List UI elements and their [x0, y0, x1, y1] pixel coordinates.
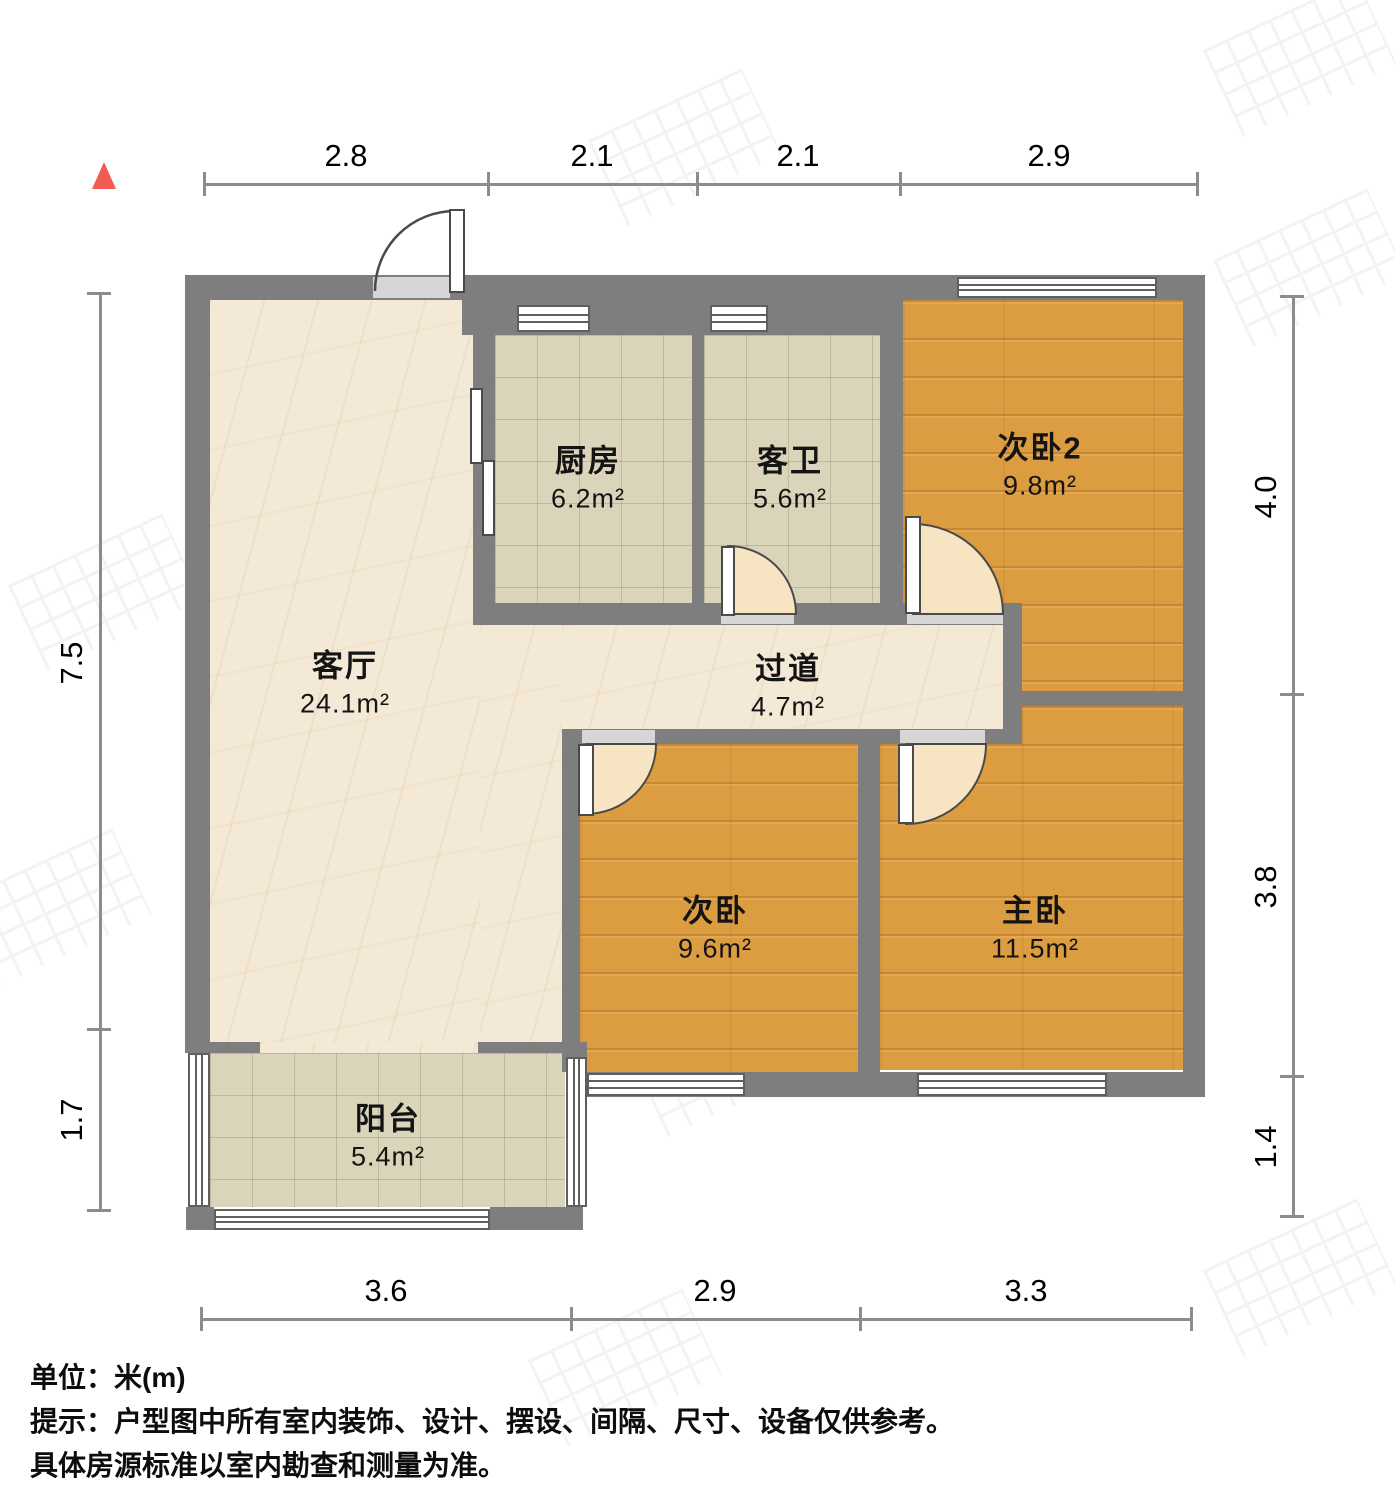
north-marker-icon — [92, 162, 116, 189]
room-name: 主卧 — [991, 886, 1079, 931]
watermark — [8, 514, 202, 672]
bedroom2-label: 次卧2 9.8m² — [997, 423, 1082, 502]
entrance-door-leaf-icon — [449, 209, 465, 293]
dim-tick — [899, 172, 902, 196]
watermark — [0, 829, 152, 987]
wall-bathroom-east — [880, 300, 903, 625]
master-door-leaf-icon — [898, 744, 914, 824]
living-room-label: 客厅 24.1m² — [300, 641, 390, 720]
dim-tick — [1280, 1075, 1304, 1078]
unit-note: 单位：米(m) — [30, 1356, 954, 1400]
dim-tick — [570, 1307, 573, 1331]
room-name: 厨房 — [551, 436, 625, 481]
wall-right — [1183, 275, 1205, 1097]
tip-note-line2: 具体房源标准以室内勘查和测量为准。 — [30, 1444, 954, 1488]
kitchen-sliding-door-icon — [482, 460, 495, 536]
balcony-label: 阳台 5.4m² — [351, 1094, 425, 1173]
dim-tick — [1190, 1307, 1193, 1331]
bedroom-label: 次卧 9.6m² — [678, 886, 752, 965]
bedroom-door-arc-icon — [584, 742, 658, 816]
footnotes: 单位：米(m) 提示：户型图中所有室内装饰、设计、摆设、间隔、尺寸、设备仅供参考… — [30, 1356, 954, 1488]
entrance-door-arc-icon — [373, 209, 457, 293]
dim-line-right — [1292, 296, 1295, 1218]
wall-kitchen-bath-divider — [692, 335, 704, 603]
kitchen-sliding-door-icon — [470, 388, 483, 464]
dim-tick — [1196, 172, 1199, 196]
room-area: 6.2m² — [551, 484, 625, 515]
dim-tick — [696, 172, 699, 196]
watermark — [1203, 1199, 1395, 1357]
dim-label-right: 3.8 — [1248, 865, 1284, 908]
wall-balcony-stub-left — [186, 1042, 260, 1053]
dim-tick — [87, 1209, 111, 1212]
bedroom2-window-icon — [957, 277, 1157, 298]
dim-label-top: 2.8 — [324, 138, 367, 174]
room-name: 客厅 — [300, 641, 390, 686]
floorplan-canvas: 客厅 24.1m² 厨房 6.2m² 客卫 5.6m² 次卧2 9.8m² 过道… — [0, 0, 1395, 1508]
dim-tick — [200, 1307, 203, 1331]
dim-tick — [1280, 693, 1304, 696]
bedroom-door-leaf-icon — [578, 744, 594, 816]
wall-bedroom-master-divider — [858, 742, 880, 1072]
bathroom-door-arc-icon — [726, 544, 798, 616]
dim-label-right: 4.0 — [1248, 475, 1284, 518]
watermark — [1203, 0, 1395, 136]
dim-label-bottom: 3.6 — [364, 1273, 407, 1309]
room-area: 24.1m² — [300, 689, 390, 720]
dim-tick — [1280, 295, 1304, 298]
master-window-icon — [917, 1073, 1107, 1096]
wall-bedroom2-master-divider — [1003, 691, 1183, 706]
living-room-floor — [480, 625, 562, 1042]
master-bedroom-label: 主卧 11.5m² — [991, 886, 1079, 965]
room-area: 9.6m² — [678, 934, 752, 965]
living-room-floor — [260, 1042, 478, 1053]
room-area: 4.7m² — [751, 692, 825, 723]
dim-label-bottom: 2.9 — [693, 1273, 736, 1309]
dim-tick — [203, 172, 206, 196]
room-name: 过道 — [751, 644, 825, 689]
dim-tick — [87, 1028, 111, 1031]
room-area: 5.4m² — [351, 1142, 425, 1173]
dim-tick — [87, 292, 111, 295]
bedroom2-door-leaf-icon — [905, 516, 921, 614]
room-area: 9.8m² — [997, 471, 1082, 502]
bathroom-door-leaf-icon — [721, 546, 735, 616]
dim-label-top: 2.1 — [570, 138, 613, 174]
master-door-arc-icon — [904, 742, 988, 826]
balcony-window-west-icon — [188, 1053, 210, 1207]
dim-tick — [859, 1307, 862, 1331]
watermark — [588, 69, 782, 227]
wall-balcony-south — [490, 1207, 583, 1230]
dim-tick — [1280, 1215, 1304, 1218]
room-name: 次卧2 — [997, 423, 1082, 468]
bedroom-window-icon — [587, 1073, 745, 1096]
room-area: 5.6m² — [753, 484, 827, 515]
wall-left — [185, 275, 210, 1053]
wall-hallway-east — [1003, 603, 1022, 744]
watermark — [1213, 189, 1395, 347]
dim-label-top: 2.9 — [1027, 138, 1070, 174]
bathroom-label: 客卫 5.6m² — [753, 436, 827, 515]
room-area: 11.5m² — [991, 934, 1079, 965]
dim-line-bottom — [201, 1318, 1192, 1321]
dim-label-right: 1.4 — [1248, 1125, 1284, 1168]
wall-balcony-corner-sw — [186, 1207, 214, 1230]
hallway-label: 过道 4.7m² — [751, 644, 825, 723]
dim-label-left: 7.5 — [54, 641, 90, 684]
tip-note-line1: 提示：户型图中所有室内装饰、设计、摆设、间隔、尺寸、设备仅供参考。 — [30, 1400, 954, 1444]
bathroom-window-icon — [710, 305, 768, 332]
dim-line-top — [204, 183, 1198, 186]
dim-label-top: 2.1 — [776, 138, 819, 174]
kitchen-label: 厨房 6.2m² — [551, 436, 625, 515]
dim-line-left — [99, 293, 102, 1212]
balcony-window-east-icon — [566, 1057, 587, 1207]
dim-label-left: 1.7 — [54, 1098, 90, 1141]
room-name: 阳台 — [351, 1094, 425, 1139]
wall-balcony-corner — [566, 1042, 587, 1057]
balcony-window-south-icon — [214, 1209, 490, 1230]
room-name: 客卫 — [753, 436, 827, 481]
dim-label-bottom: 3.3 — [1004, 1273, 1047, 1309]
dim-tick — [487, 172, 490, 196]
wall-balcony-stub-right — [478, 1042, 566, 1053]
bedroom2-door-arc-icon — [911, 522, 1005, 616]
room-name: 次卧 — [678, 886, 752, 931]
kitchen-window-icon — [517, 305, 590, 332]
